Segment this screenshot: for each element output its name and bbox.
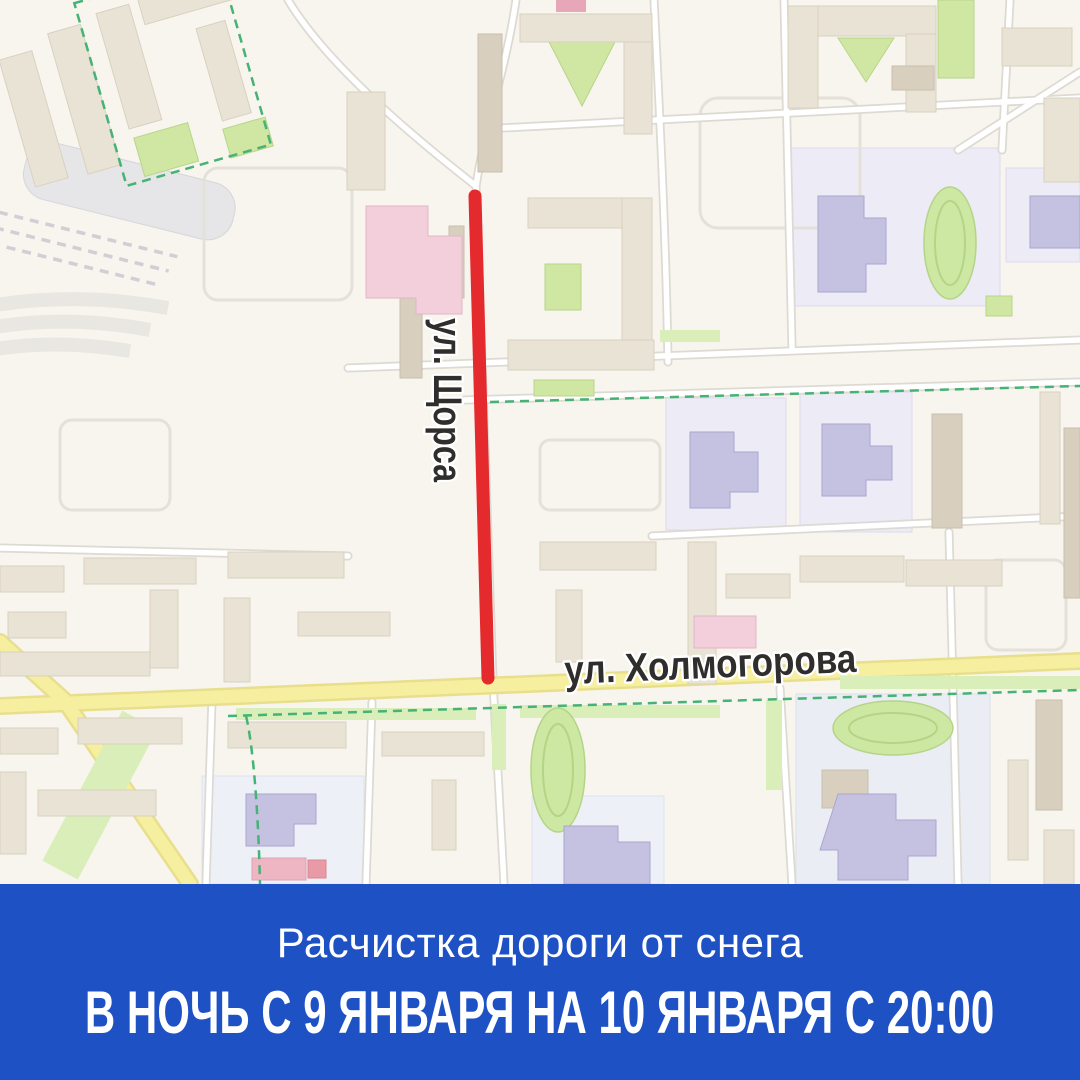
banner-title: В НОЧЬ С 9 ЯНВАРЯ НА 10 ЯНВАРЯ С 20:00 [85,981,994,1044]
stadium-oval [531,708,585,832]
info-banner: Расчистка дороги от снега В НОЧЬ С 9 ЯНВ… [0,884,1080,1080]
garage-row [0,322,150,330]
street-label-shchorsa: ул. Щорса [425,318,469,483]
banner-subtitle: Расчистка дороги от снега [277,920,804,966]
city-map: ул. Щорса ул. Холмогорова [0,0,1080,884]
garage-row [0,344,130,351]
stadium-oval [833,701,953,755]
stadium-oval [924,187,976,299]
post-image: ул. Щорса ул. Холмогорова Расчистка доро… [0,0,1080,1080]
map-canvas: ул. Щорса ул. Холмогорова [0,0,1080,884]
